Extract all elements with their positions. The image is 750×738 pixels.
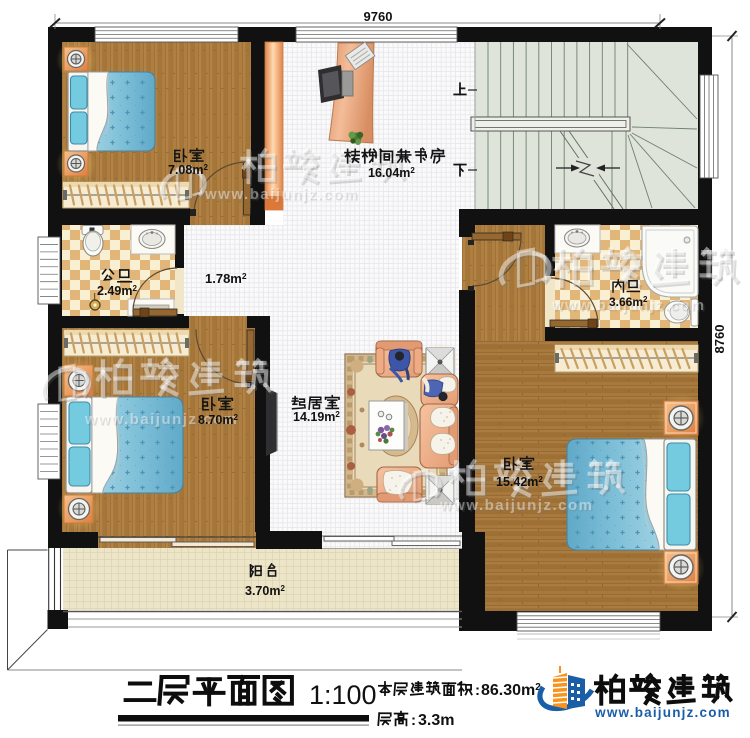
svg-text:8.70m2: 8.70m2: [198, 413, 238, 427]
svg-text:1.78m2: 1.78m2: [205, 271, 247, 286]
svg-text:3.66m2: 3.66m2: [609, 295, 648, 309]
svg-text:86.30m2: 86.30m2: [481, 682, 541, 699]
svg-text:2.49m2: 2.49m2: [97, 284, 137, 298]
svg-text:16.04m2: 16.04m2: [368, 166, 415, 180]
svg-text:7.08m2: 7.08m2: [168, 163, 208, 177]
svg-text:1:100: 1:100: [309, 680, 377, 710]
svg-text:www.baijunjz.com: www.baijunjz.com: [594, 705, 731, 720]
svg-text:14.19m2: 14.19m2: [293, 410, 340, 424]
svg-text:www.baijunjz.com: www.baijunjz.com: [204, 186, 358, 203]
svg-text:3.3m: 3.3m: [418, 712, 454, 729]
svg-text:3.70m2: 3.70m2: [245, 584, 285, 598]
svg-text:15.42m2: 15.42m2: [496, 475, 543, 489]
svg-text:www.baijunjz.com: www.baijunjz.com: [439, 497, 593, 514]
svg-text::: :: [475, 682, 480, 699]
svg-text::: :: [411, 712, 416, 729]
svg-text:8760: 8760: [712, 325, 727, 354]
svg-text:9760: 9760: [364, 9, 393, 24]
